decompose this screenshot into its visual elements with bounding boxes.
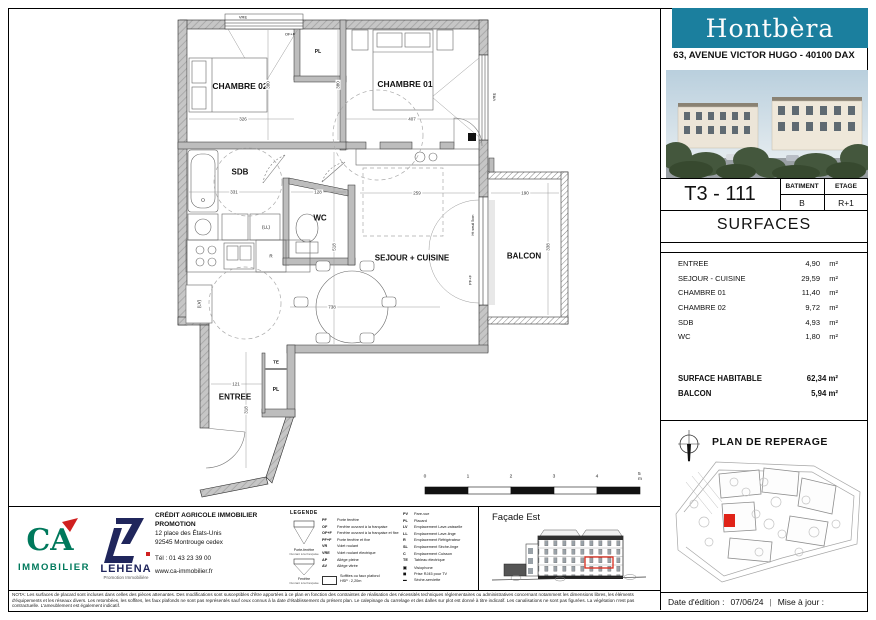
legend-entry: ◼Prise RJ45 pour TV <box>403 571 478 578</box>
legend-label: Sèche-serviette <box>414 578 440 582</box>
brand-title: Hontbèra <box>706 14 835 43</box>
ca-logo-subtitle: IMMOBILIER <box>18 562 90 573</box>
legend-abbr: PF <box>322 518 337 522</box>
legend-entry: PF+FPorte fenêtre et fixe <box>322 538 402 545</box>
etage-header: ETAGE <box>824 183 868 190</box>
surface-total-row: SURFACE HABITABLE 62,34 m² <box>678 372 842 387</box>
row-border <box>660 210 868 211</box>
legend-label: Volet roulant <box>337 544 358 548</box>
date-maj-label: Mise à jour : <box>778 597 824 607</box>
surface-unit: m² <box>829 332 838 341</box>
scale-tick-label: 1 <box>467 475 470 480</box>
legend-abbr: PL <box>403 519 414 523</box>
legend-label: Porte fenêtre et fixe <box>337 538 370 542</box>
surface-room-label: CHAMBRE 01 <box>678 288 726 297</box>
scale-tick-label: 3 <box>553 475 556 480</box>
scale-ticks: 012345 m <box>425 472 641 484</box>
legend-abbr: VR <box>322 544 337 548</box>
promoter-name-line2: PROMOTION <box>155 520 287 529</box>
legend-entry: LLEmplacement Lave-linge <box>403 532 478 539</box>
surface-total-label: BALCON <box>678 389 711 398</box>
plan-sheet: CHAMBRE 02CHAMBRE 01SDBWCSEJOUR + CUISIN… <box>0 0 876 620</box>
legend-entry: ▬Sèche-serviette <box>403 578 478 585</box>
legend-entry: VREVolet roulant électrique <box>322 551 402 558</box>
legend-label: Emplacement Lave-vaisselle <box>414 525 462 529</box>
section-border <box>660 420 868 421</box>
legend-abbr: LL <box>403 532 414 536</box>
promoter-address-line1: 12 place des États-Unis <box>155 529 287 538</box>
strip-bottom-border <box>8 590 660 591</box>
promoter-name-line1: CRÉDIT AGRICOLE IMMOBILIER <box>155 511 287 520</box>
surface-value: 9,72 <box>780 303 820 312</box>
surface-value: 29,59 <box>780 274 820 283</box>
lehena-name: LEHENA <box>100 563 151 575</box>
legend-entry: ▣Visiophone <box>403 565 478 572</box>
unit-code: T3 - 111 <box>660 178 780 210</box>
batiment-value: B <box>780 198 824 208</box>
legend-label: Emplacement Cuisson <box>414 552 452 556</box>
legend-abbr: C <box>403 552 414 556</box>
surface-room-label: ENTREE <box>678 259 708 268</box>
promoter-address-line2: 92545 Montrouge cedex <box>155 538 287 547</box>
promoter-website: www.ca-immobilier.fr <box>155 567 287 576</box>
main-vertical-divider <box>660 8 661 610</box>
balcony <box>488 158 568 324</box>
surface-total-value: 62,34 m² <box>778 374 838 383</box>
surface-row: WC 1,80 m² <box>678 330 842 345</box>
surface-unit: m² <box>829 303 838 312</box>
surface-room-label: WC <box>678 332 691 341</box>
surface-room-label: CHAMBRE 02 <box>678 303 726 312</box>
legend-label: Visiophone <box>414 566 433 570</box>
legend-entry: AVAllège vitrée <box>322 564 402 571</box>
promoter-phone: Tél : 01 43 23 39 00 <box>155 554 287 563</box>
legend-entry: TETableau électrique <box>403 558 478 565</box>
legend-label: Allège pleine <box>337 558 359 562</box>
date-edition-label: Date d'édition : <box>668 597 724 607</box>
legend-abbr: AV <box>322 564 337 568</box>
project-address: 63, AVENUE VICTOR HUGO - 40100 DAX <box>660 50 868 61</box>
legend-label: Emplacement Réfrigérateur <box>414 538 460 542</box>
floor-plan-drawing <box>0 0 660 505</box>
legend: LEGENDE Porte-fenêtreOuvrant à la frança… <box>288 508 478 590</box>
legend-abbr: PV <box>403 512 414 516</box>
surface-total-label: SURFACE HABITABLE <box>678 374 762 383</box>
strip-top-border <box>8 506 660 507</box>
legend-entry: OF+FFenêtre ouvrant à la française et fi… <box>322 531 402 538</box>
window-symbols <box>225 14 488 305</box>
promoter-info: CRÉDIT AGRICOLE IMMOBILIER PROMOTION 12 … <box>155 511 287 576</box>
facade-drawing <box>488 522 652 586</box>
surface-row: SEJOUR - CUISINE 29,59 m² <box>678 272 842 287</box>
surface-row: CHAMBRE 01 11,40 m² <box>678 286 842 301</box>
legend-label: Volet roulant électrique <box>337 551 376 555</box>
legend-label: Emplacement Sèche-linge <box>414 545 458 549</box>
surface-value: 4,90 <box>780 259 820 268</box>
legend-icon-caption: Porte-fenêtreOuvrant à la française <box>289 548 319 556</box>
scale-tick-label: 2 <box>510 475 513 480</box>
soffite-box-icon <box>322 576 337 585</box>
surface-value: 1,80 <box>780 332 820 341</box>
legend-entry: PFPorte fenêtre <box>322 518 402 525</box>
site-plan <box>664 452 868 590</box>
legend-abbr: OF <box>322 525 337 529</box>
legend-entry: LVEmplacement Lave-vaisselle <box>403 525 478 532</box>
ca-immobilier-logo: CA IMMOBILIER <box>12 516 96 582</box>
legend-abbr: LV <box>403 525 414 529</box>
legend-icon-caption: FenêtreOuvrant à la française <box>289 577 319 585</box>
legend-abbr: ◼ <box>403 571 414 576</box>
date-edition-value: 07/06/24 <box>730 597 763 607</box>
legend-entry: SLEmplacement Sèche-linge <box>403 545 478 552</box>
surface-value: 11,40 <box>780 288 820 297</box>
surface-row: SDB 4,93 m² <box>678 316 842 331</box>
scale-tick-label: 4 <box>596 475 599 480</box>
legend-label: Allège vitrée <box>337 564 358 568</box>
scale-tick-label: 5 m <box>638 472 642 482</box>
legend-entry: PLPlacard <box>403 519 478 526</box>
section-border <box>660 252 868 253</box>
facade-cell-border <box>478 506 479 590</box>
surface-unit: m² <box>829 318 838 327</box>
legend-title: LEGENDE <box>290 510 318 516</box>
legend-abbr: R <box>403 538 414 542</box>
surface-value: 4,93 <box>780 318 820 327</box>
surfaces-totals: SURFACE HABITABLE 62,34 m² BALCON 5,94 m… <box>678 372 842 402</box>
etage-value: R+1 <box>824 198 868 208</box>
batiment-header: BATIMENT <box>780 183 824 190</box>
surface-total-row: BALCON 5,94 m² <box>678 387 842 402</box>
surface-unit: m² <box>829 288 838 297</box>
legend-abbr: PF+F <box>322 538 337 542</box>
datebar-border <box>660 592 868 593</box>
cell-border <box>780 194 868 195</box>
legend-abbr: AP <box>322 558 337 562</box>
legend-label: Fenêtre ouvrant à la française et fixe <box>337 531 399 535</box>
scale-tick-label: 0 <box>424 475 427 480</box>
legend-label: Tableau électrique <box>414 558 445 562</box>
legend-label: Emplacement Lave-linge <box>414 532 456 536</box>
surface-room-label: SEJOUR - CUISINE <box>678 274 746 283</box>
surface-unit: m² <box>829 274 838 283</box>
porte-fenetre-icon <box>292 520 316 546</box>
legend-entry: OFFenêtre ouvrant à la française <box>322 525 402 532</box>
te-marker-sejour <box>468 133 476 141</box>
date-separator: | <box>770 597 772 607</box>
fenetre-icon <box>292 558 316 576</box>
legend-entry: VRVolet roulant <box>322 544 402 551</box>
legend-label: Placard <box>414 519 427 523</box>
legend-column-1: PFPorte fenêtreOFFenêtre ouvrant à la fr… <box>322 518 402 571</box>
legend-label: Prise RJ45 pour TV <box>414 572 447 576</box>
lehena-subtitle: Promotion Immobilière <box>103 575 149 580</box>
date-bar: Date d'édition : 07/06/24 | Mise à jour … <box>668 597 868 607</box>
legend-label: Porte fenêtre <box>337 518 359 522</box>
site-plan-unit-highlight <box>724 514 735 527</box>
surfaces-title: SURFACES <box>660 216 868 234</box>
surface-room-label: SDB <box>678 318 693 327</box>
legend-abbr: ▬ <box>403 578 414 582</box>
surface-unit: m² <box>829 259 838 268</box>
surface-total-value: 5,94 m² <box>778 389 838 398</box>
lehena-red-square <box>146 552 150 556</box>
legend-abbr: OF+F <box>322 531 337 535</box>
building-photo <box>666 70 868 178</box>
legend-abbr: VRE <box>322 551 337 555</box>
legend-entry: PVPare-vue <box>403 512 478 519</box>
scale-bar <box>425 487 640 494</box>
reperage-title: PLAN DE REPERAGE <box>712 436 828 448</box>
soffite-legend-entry: Soffites ou faux plafondHSP : 2,20m <box>340 574 380 583</box>
surfaces-table: ENTREE 4,90 m² SEJOUR - CUISINE 29,59 m²… <box>678 257 842 345</box>
brand-banner: Hontbèra <box>672 8 868 48</box>
legend-abbr: TE <box>403 558 414 562</box>
legend-column-2: PVPare-vuePLPlacardLVEmplacement Lave-va… <box>403 512 478 585</box>
nota-text: NOTA: Les surfaces de placard sont inclu… <box>12 592 654 609</box>
legend-entry: REmplacement Réfrigérateur <box>403 538 478 545</box>
lehena-logo: LEHENA Promotion Immobilière <box>98 514 156 582</box>
legend-abbr: ▣ <box>403 565 414 570</box>
legend-entry: APAllège pleine <box>322 558 402 565</box>
legend-label: Fenêtre ouvrant à la française <box>337 525 387 529</box>
surface-row: CHAMBRE 02 9,72 m² <box>678 301 842 316</box>
surface-row: ENTREE 4,90 m² <box>678 257 842 272</box>
legend-abbr: SL <box>403 545 414 549</box>
legend-label: Pare-vue <box>414 512 429 516</box>
legend-entry: CEmplacement Cuisson <box>403 552 478 559</box>
section-border <box>660 242 868 243</box>
